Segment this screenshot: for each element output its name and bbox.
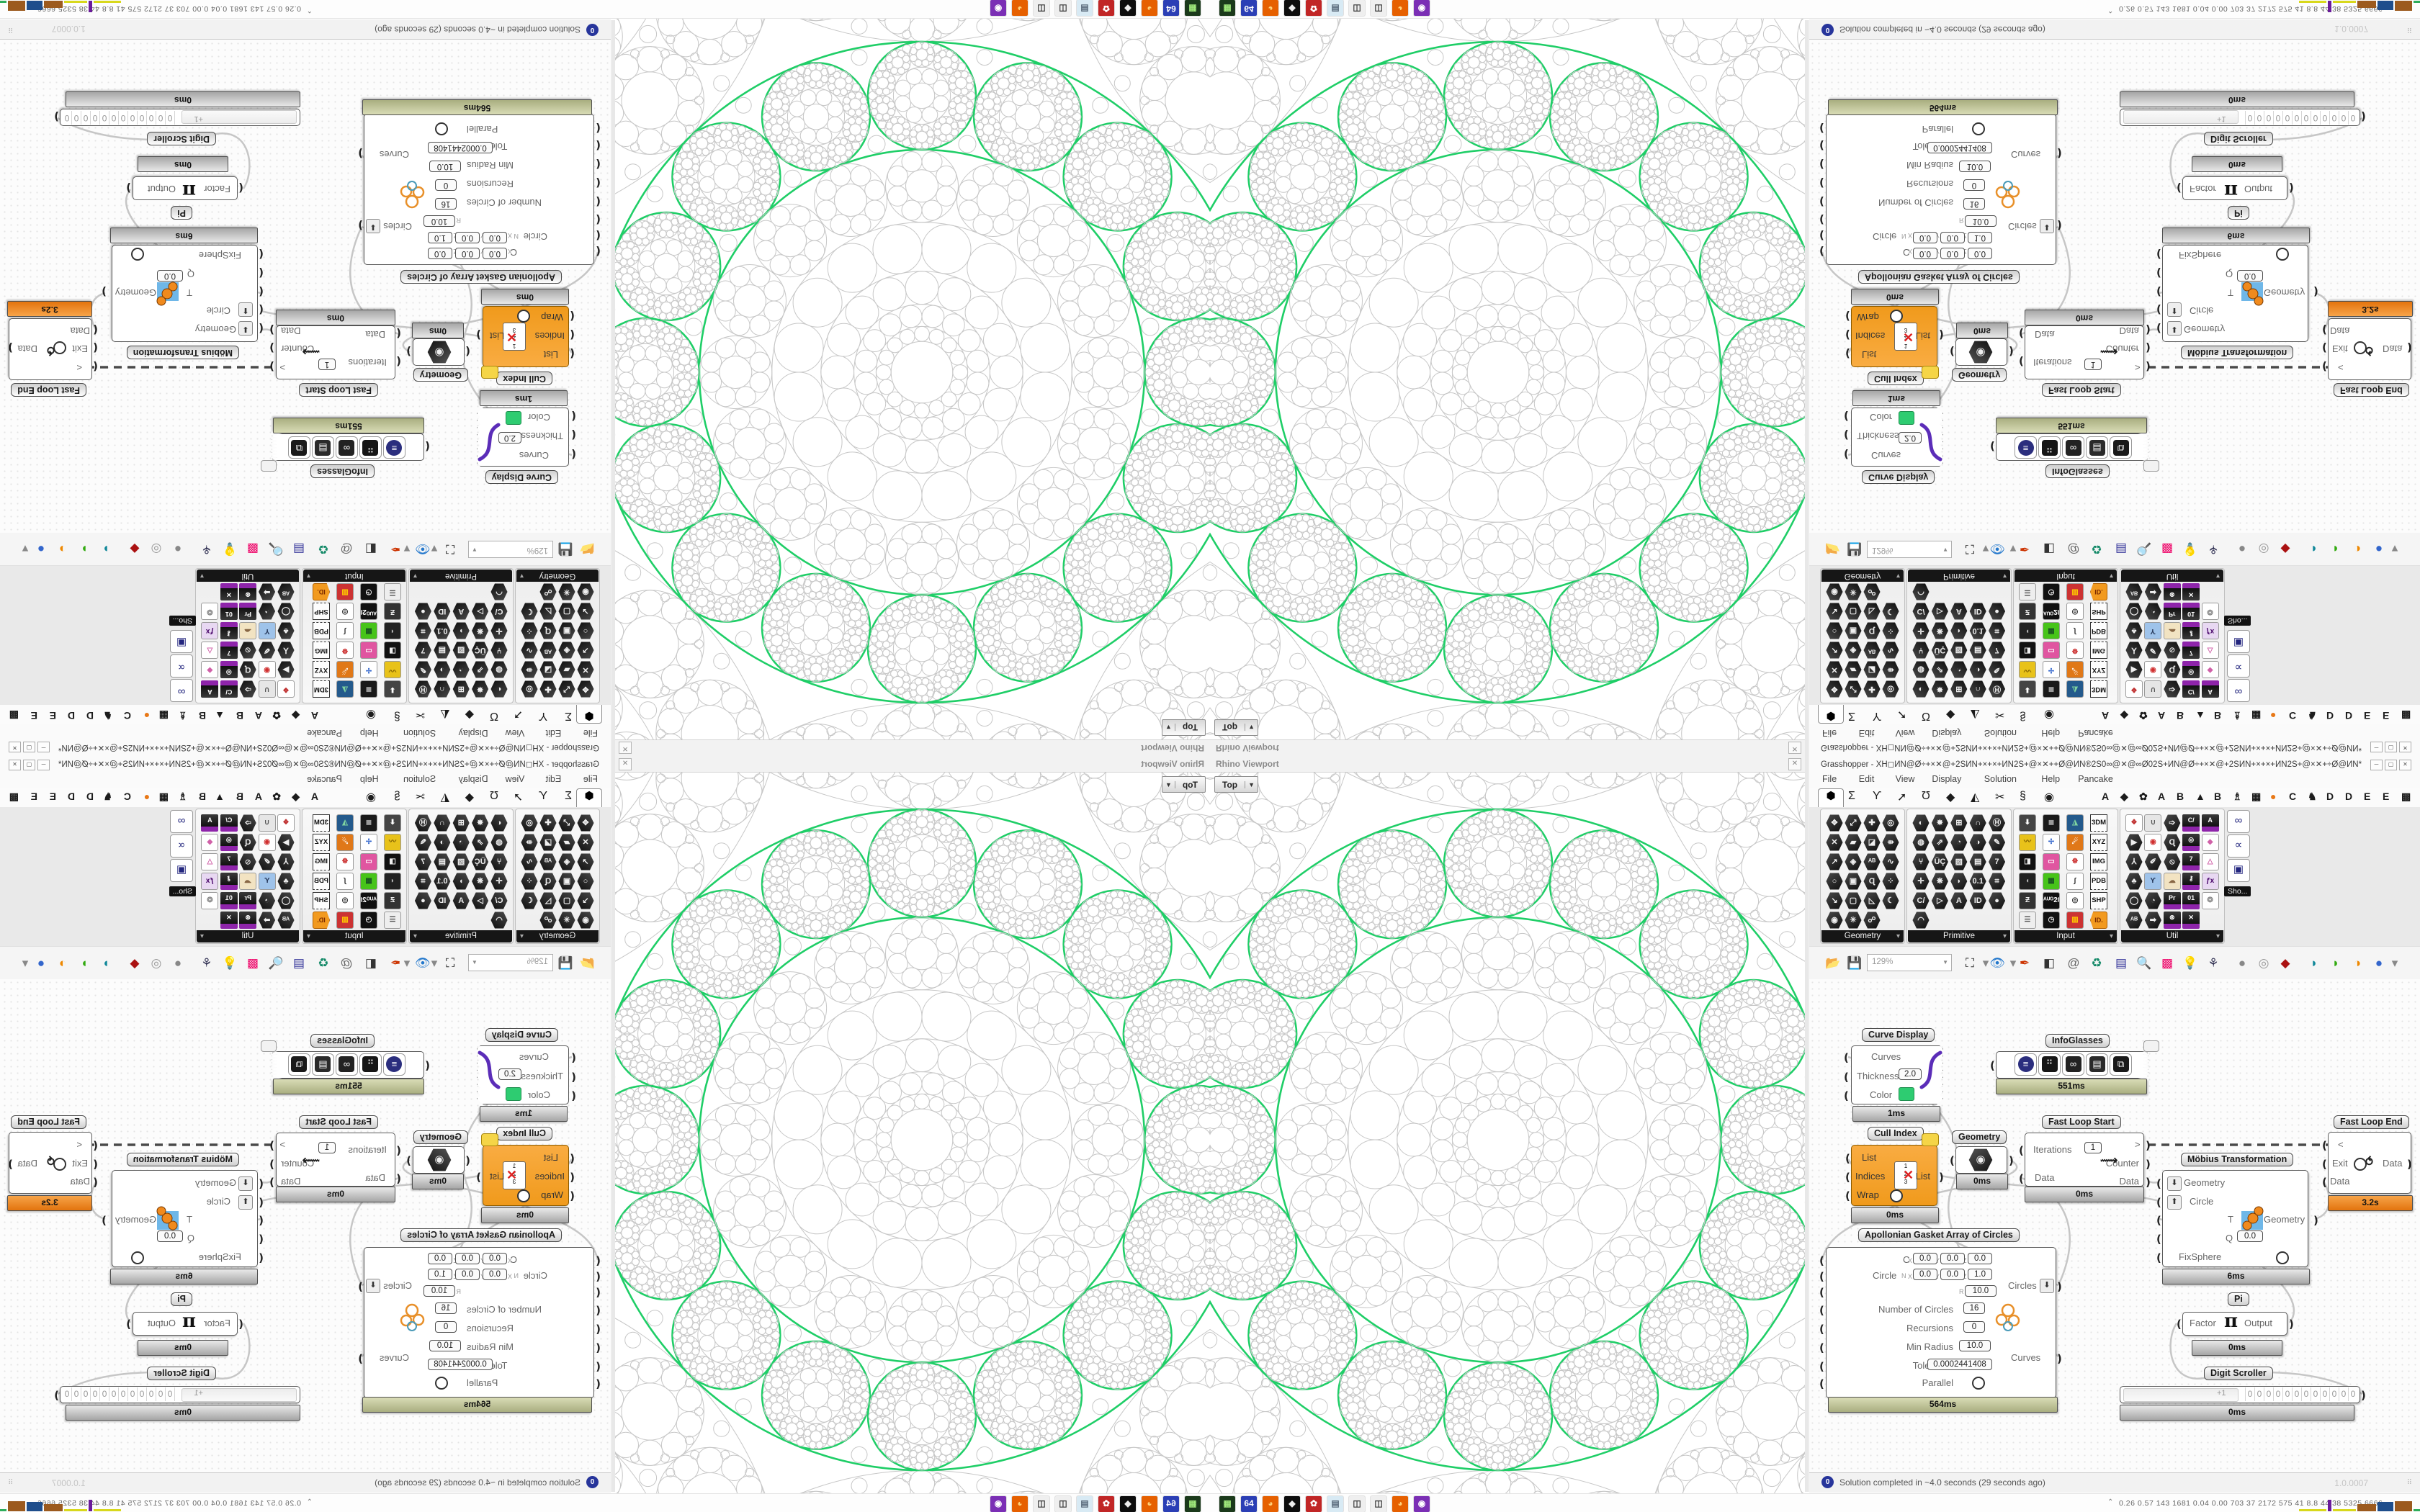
component-icon[interactable]: ◉ <box>259 661 276 678</box>
menu-view[interactable]: View <box>506 774 525 784</box>
tab-category-4[interactable]: ◆ <box>465 790 474 804</box>
digit-cell[interactable]: 0 <box>2273 111 2282 125</box>
tab-addon-2[interactable]: ✿ <box>2139 791 2148 803</box>
graft-icon[interactable]: ⬆ <box>238 302 253 317</box>
component-icon[interactable]: ✢ <box>360 834 377 851</box>
input-hook[interactable]: ( <box>570 1171 575 1184</box>
component-icon[interactable]: △ <box>201 642 218 659</box>
tab-params[interactable]: ⬢ <box>576 704 602 724</box>
component-icon[interactable]: ✕ <box>1826 661 1843 678</box>
component-icon[interactable]: Pr <box>239 603 256 620</box>
component-icon[interactable]: ▨ <box>452 642 470 659</box>
menu-file[interactable]: File <box>583 774 598 784</box>
digit-cell[interactable]: 0 <box>119 1387 128 1401</box>
input-hook[interactable]: ( <box>571 410 576 423</box>
component-icon[interactable]: 3DM <box>313 680 330 698</box>
component-icon[interactable]: ◐ <box>1912 814 1930 832</box>
min-radius-value[interactable]: 10.0 <box>429 1340 461 1351</box>
chevron-down-icon[interactable]: ▼ <box>1162 781 1175 788</box>
component-icon[interactable]: ▥ <box>2066 583 2084 600</box>
tab-category-4[interactable]: ◆ <box>1946 708 1955 722</box>
wrap-toggle[interactable] <box>1890 1189 1903 1202</box>
component-icon[interactable]: ⬇ <box>384 680 401 698</box>
component-icon[interactable]: ◎ <box>220 661 238 678</box>
normal-coord-value[interactable]: 1.0 <box>428 232 452 243</box>
menu-display[interactable]: Display <box>1932 774 1961 784</box>
menu-view[interactable]: View <box>1896 774 1915 784</box>
toolbar-button-sphere-blue[interactable]: ▾ <box>16 539 35 558</box>
input-hook[interactable]: ( <box>396 355 401 368</box>
panel-footer-util[interactable]: Util▾ <box>197 930 299 942</box>
component-icon[interactable]: 〰 <box>2019 661 2036 678</box>
close-icon[interactable]: ✕ <box>9 760 21 770</box>
menu-solution[interactable]: Solution <box>403 774 436 784</box>
tab-addon-15[interactable]: E <box>31 791 37 802</box>
component-icon[interactable]: 7 <box>220 642 238 659</box>
goggles-lock-icon[interactable]: ∞ <box>336 436 358 459</box>
component-icon[interactable]: XYZ <box>2090 661 2107 678</box>
output-hook[interactable]: ) <box>102 285 107 298</box>
c-coord-value[interactable]: 0.0 <box>1968 248 1992 259</box>
component-icon[interactable]: ▰ <box>558 661 575 678</box>
tab-category-0[interactable]: Σ <box>565 709 572 722</box>
input-hook[interactable]: ( <box>259 1214 264 1227</box>
component-icon[interactable]: ☸ <box>336 853 354 870</box>
component-icon[interactable]: ▢ <box>1845 603 1862 620</box>
input-hook[interactable]: ( <box>1819 213 1824 226</box>
toolbar-button-pin-teal[interactable]: ◎ <box>2254 539 2273 558</box>
tab-category-7[interactable]: § <box>394 709 400 722</box>
component-icon[interactable]: ✥ <box>1826 814 1843 832</box>
component-icon[interactable]: ✕ <box>2182 912 2200 929</box>
component-icon[interactable]: ✐ <box>2144 853 2161 870</box>
input-hook[interactable]: ( <box>1990 1059 1995 1072</box>
component-icon[interactable]: ᴬᵁᴳ20 <box>360 603 377 620</box>
chevron-down-icon[interactable]: ▼ <box>1245 781 1258 788</box>
tab-category-6[interactable]: ✂ <box>1995 790 2004 804</box>
menu-help[interactable]: Help <box>360 728 379 738</box>
archive-icon[interactable]: ▤ <box>312 436 334 459</box>
overflow-icon-1[interactable]: ∝ <box>170 654 193 678</box>
tab-addon-3[interactable]: A <box>255 791 262 802</box>
component-icon[interactable]: ⊞ <box>1950 814 1968 832</box>
component-icon[interactable]: ◗ <box>452 873 470 890</box>
component-icon[interactable]: ◷ <box>2043 912 2060 929</box>
infoglasses-balloon[interactable] <box>261 1040 277 1052</box>
toolbar-button-sphere-gray[interactable]: 💡 <box>2181 954 2200 973</box>
overflow-icon-2[interactable]: ▣ <box>2227 630 2250 653</box>
component-icon[interactable]: ✸ <box>472 814 489 832</box>
component-infoglasses-label[interactable]: InfoGlasses <box>310 464 375 478</box>
component-icon[interactable]: ID. <box>313 912 330 929</box>
component-icon[interactable]: 01 <box>220 603 238 620</box>
component-icon[interactable]: ☰ <box>2019 912 2036 929</box>
component-icon[interactable]: ◗ <box>1950 622 1968 639</box>
normal-coord-value[interactable]: 1.0 <box>1968 232 1992 243</box>
component-icon[interactable]: ⤢ <box>1845 680 1862 698</box>
input-hook[interactable]: ( <box>93 360 98 373</box>
component-icon[interactable]: ◔ <box>259 603 276 620</box>
output-hook[interactable]: ) <box>8 341 13 354</box>
component-icon[interactable]: ▥ <box>336 912 354 929</box>
component-icon[interactable]: 〰 <box>2019 834 2036 851</box>
count-value[interactable]: 16 <box>1963 198 1985 210</box>
goggles-lock-icon[interactable]: ∞ <box>2062 436 2084 459</box>
digit-cell[interactable]: 0 <box>2339 1387 2348 1401</box>
overflow-icon-2[interactable]: ▣ <box>2227 859 2250 882</box>
input-hook[interactable]: ( <box>596 1254 601 1267</box>
component-infoglasses-label[interactable]: InfoGlasses <box>310 1034 375 1048</box>
menu-pancake[interactable]: Pancake <box>307 728 342 738</box>
component-icon[interactable]: ᴬᴮ <box>277 583 295 600</box>
component-icon[interactable]: C/ <box>490 603 508 620</box>
component-icon[interactable]: ✕ <box>2182 583 2200 600</box>
toolbar-button-gift-question[interactable]: ▤ <box>2112 954 2130 973</box>
toolbar-button-save[interactable]: 💾 <box>556 954 575 973</box>
component-icon[interactable]: ⇗ <box>472 834 489 851</box>
component-icon[interactable]: ◎ <box>336 892 354 909</box>
component-icon[interactable]: ◪ <box>539 834 557 851</box>
component-icon[interactable]: ⚷ <box>2182 873 2200 890</box>
toolbar-button-search-s[interactable]: ♻ <box>2087 954 2106 973</box>
component-icon[interactable]: ✳ <box>1845 583 1862 600</box>
tab-category-1[interactable]: Ƴ <box>1873 790 1881 803</box>
component-icon[interactable]: ❂ <box>201 603 218 620</box>
component-icon[interactable]: ↘ <box>577 892 594 909</box>
component-icon[interactable]: ⬇ <box>2019 680 2036 698</box>
tab-category-8[interactable]: ◉ <box>366 790 376 804</box>
component-geometry-label[interactable]: Geometry <box>413 368 468 382</box>
component-icon[interactable]: ▤ <box>434 642 451 659</box>
toolbar-button-pin-teal[interactable]: ◎ <box>2254 954 2273 973</box>
component-icon[interactable]: ❋ <box>472 873 489 890</box>
component-icon[interactable]: ☾ <box>1882 892 1899 909</box>
puzzle-icon[interactable]: ⧉ <box>2110 436 2132 459</box>
component-icon[interactable]: ✚ <box>1863 680 1881 698</box>
overflow-icon-2[interactable]: ▣ <box>170 859 193 882</box>
parallel-toggle[interactable] <box>1972 122 1985 135</box>
component-icon[interactable]: ∩ <box>434 814 451 832</box>
input-hook[interactable]: ( <box>570 310 575 323</box>
component-icon[interactable]: A <box>201 680 218 698</box>
component-icon[interactable]: 0.1 <box>434 873 451 890</box>
grid-icon[interactable]: ⠛ <box>359 436 382 459</box>
component-icon[interactable]: ☍ <box>539 912 557 929</box>
panel-footer-util[interactable]: Util▾ <box>197 570 299 582</box>
input-hook[interactable]: ( <box>2322 1158 2327 1171</box>
grasshopper-titlebar[interactable]: Grasshopper - XH◻ИN@Ø÷+×✕@+2SИN+×+×+ИN2S… <box>0 739 611 756</box>
firefox-icon[interactable]: ◕ <box>1141 0 1158 17</box>
component-pi-label[interactable]: Pi <box>171 1292 192 1306</box>
tab-addon-7[interactable]: ♗ <box>178 709 187 721</box>
tab-addon-15[interactable]: E <box>2383 791 2389 802</box>
toolbar-button-sphere-orange[interactable]: ◗ <box>97 954 115 973</box>
minimize-icon[interactable]: ─ <box>37 742 50 752</box>
component-icon[interactable]: ⑂ <box>1912 853 1930 870</box>
output-hook[interactable]: ) <box>2361 1389 2366 1402</box>
component-icon[interactable]: ◈ <box>558 853 575 870</box>
normal-coord-value[interactable]: 1.0 <box>1968 1269 1992 1280</box>
output-hook[interactable]: ) <box>2361 110 2366 123</box>
component-icon[interactable]: ☍ <box>1863 912 1881 929</box>
tab-addon-10[interactable]: C <box>2289 791 2296 802</box>
digit-cell[interactable]: 0 <box>2282 111 2292 125</box>
component-icon[interactable]: Ƶ <box>384 603 401 620</box>
component-icon[interactable]: ◼ <box>360 814 377 832</box>
resize-grip-icon[interactable]: ⠿ <box>7 1479 13 1487</box>
component-icon[interactable]: ✕ <box>577 661 594 678</box>
component-icon[interactable]: ▶ <box>2125 834 2143 851</box>
tab-addon-5[interactable]: ▲ <box>2195 710 2205 721</box>
component-icon[interactable]: ◎ <box>521 814 538 832</box>
component-icon[interactable]: ☾ <box>521 892 538 909</box>
component-icon[interactable]: ⊗ <box>239 583 256 600</box>
minimize-icon[interactable]: ─ <box>2370 760 2383 770</box>
tab-category-7[interactable]: § <box>394 790 400 803</box>
component-icon[interactable]: ∿ <box>1882 642 1899 659</box>
tab-addon-1[interactable]: ◆ <box>2120 791 2128 803</box>
component-icon[interactable]: ☁ <box>239 622 256 639</box>
iterations-value[interactable]: 1 <box>318 1142 336 1153</box>
component-icon[interactable]: ◨ <box>384 642 401 659</box>
radius-value[interactable]: 10.0 <box>1965 1285 1996 1297</box>
toolbar-button-pin-green[interactable]: ◆ <box>2276 539 2295 558</box>
close-icon[interactable]: ✕ <box>2399 760 2411 770</box>
component-icon[interactable]: ◐ <box>490 814 508 832</box>
min-radius-value[interactable]: 10.0 <box>1959 161 1991 172</box>
component-infoglasses-label[interactable]: InfoGlasses <box>2045 464 2110 478</box>
viewport-view-dropdown[interactable]: Top ▼ <box>1162 776 1206 793</box>
toolbar-button-gha[interactable]: ◧ <box>362 539 380 558</box>
component-icon[interactable]: ✚ <box>539 814 557 832</box>
iterations-value[interactable]: 1 <box>2084 359 2102 370</box>
component-icon[interactable]: ◠ <box>490 583 508 600</box>
component-icon[interactable]: ☄ <box>2066 834 2084 851</box>
component-icon[interactable]: A <box>452 892 470 909</box>
input-hook[interactable]: ( <box>259 266 264 279</box>
input-hook[interactable]: ( <box>259 1177 264 1190</box>
component-icon[interactable]: ⌗ <box>414 622 431 639</box>
component-icon[interactable]: ▣ <box>1845 622 1862 639</box>
output-hook[interactable]: ) <box>2146 360 2151 373</box>
component-icon[interactable]: ❖ <box>277 814 295 832</box>
component-icon[interactable]: ▤ <box>1969 642 1986 659</box>
tab-addon-2[interactable]: ✿ <box>2139 709 2148 721</box>
component-geometry-label[interactable]: Geometry <box>1952 368 2007 382</box>
chevron-down-icon[interactable]: ▼ <box>1245 724 1258 732</box>
tab-addon-12[interactable]: D <box>2326 710 2334 721</box>
color-swatch[interactable] <box>506 411 521 425</box>
component-icon[interactable]: ☸ <box>2066 642 2084 659</box>
component-icon[interactable]: ✚ <box>1863 814 1881 832</box>
tab-category-4[interactable]: ◆ <box>1946 790 1955 804</box>
tab-addon-13[interactable]: D <box>2345 791 2352 802</box>
digit-cell[interactable]: 0 <box>156 1387 166 1401</box>
component-fast-loop-end-label[interactable]: Fast Loop End <box>11 1115 86 1129</box>
component-icon[interactable]: ∫ <box>336 622 354 639</box>
tab-addon-8[interactable]: ▦ <box>159 709 169 721</box>
thickness-value[interactable]: 2.0 <box>498 432 521 444</box>
component-icon[interactable]: 7 <box>220 853 238 870</box>
tab-addon-6[interactable]: B <box>2214 791 2221 802</box>
floppy-64-icon[interactable]: 64 <box>1162 1495 1180 1512</box>
toolbar-button-rings[interactable]: ⚘ <box>197 954 216 973</box>
normal-coord-value[interactable]: 0.0 <box>455 232 480 243</box>
menu-pancake[interactable]: Pancake <box>307 774 342 784</box>
tab-category-1[interactable]: Ƴ <box>539 790 547 803</box>
component-icon[interactable]: ☁ <box>239 873 256 890</box>
maximize-icon[interactable]: ▢ <box>2385 760 2397 770</box>
component-icon[interactable]: ◔ <box>2144 603 2161 620</box>
toolbar-button-sphere-blue[interactable]: ▾ <box>16 954 35 973</box>
chevron-down-icon[interactable]: ▼ <box>472 959 478 966</box>
component-icon[interactable]: ✐ <box>259 642 276 659</box>
firefox-icon[interactable]: ◕ <box>1262 0 1279 17</box>
recursions-value[interactable]: 0 <box>435 1321 457 1333</box>
component-icon[interactable]: ▣ <box>558 622 575 639</box>
digit-cell[interactable]: 0 <box>147 1387 156 1401</box>
component-icon[interactable]: ○ <box>577 622 594 639</box>
component-digit-scroller-label[interactable]: Digit Scroller <box>147 132 216 145</box>
output-hook[interactable]: ) <box>2146 341 2151 354</box>
component-icon[interactable]: ✛ <box>490 873 508 890</box>
component-icon[interactable]: ➡ <box>259 912 276 929</box>
output-hook[interactable]: ) <box>2057 219 2062 232</box>
component-pi-label[interactable]: Pi <box>171 206 192 220</box>
component-icon[interactable]: ✐ <box>2144 642 2161 659</box>
component-icon[interactable]: 7 <box>414 642 431 659</box>
input-hook[interactable]: ( <box>1950 345 1955 358</box>
component-icon[interactable]: ⌗ <box>414 873 431 890</box>
component-icon[interactable]: ◯ <box>2125 892 2143 909</box>
component-curve-display-label[interactable]: Curve Display <box>485 1028 558 1042</box>
tab-addon-7[interactable]: ♗ <box>2233 709 2242 721</box>
component-icon[interactable]: Ƶ <box>2019 892 2036 909</box>
component-icon[interactable]: ▷ <box>1931 892 1948 909</box>
component-icon[interactable]: ● <box>414 603 431 620</box>
flatten-icon[interactable]: ⬇ <box>238 1176 253 1191</box>
maze-app-icon[interactable]: ◫ <box>1054 0 1072 17</box>
digit-cell[interactable]: 0 <box>2348 1387 2357 1401</box>
component-icon[interactable]: ∿ <box>521 853 538 870</box>
component-icon[interactable]: △ <box>2202 853 2219 870</box>
component-icon[interactable]: ☄ <box>2066 661 2084 678</box>
component-icon[interactable]: ▰ <box>1845 834 1862 851</box>
component-infoglasses-label[interactable]: InfoGlasses <box>2045 1034 2110 1048</box>
input-hook[interactable]: ( <box>93 1176 98 1189</box>
component-icon[interactable]: ◪ <box>539 661 557 678</box>
digit-cell[interactable]: 0 <box>2264 111 2273 125</box>
component-icon[interactable]: ID <box>1969 892 1986 909</box>
digit-cell[interactable]: 0 <box>63 111 72 125</box>
component-icon[interactable]: ◆ <box>201 834 218 851</box>
tab-addon-10[interactable]: C <box>124 791 131 802</box>
tab-addon-14[interactable]: E <box>50 710 56 721</box>
component-icon[interactable]: ✳ <box>558 912 575 929</box>
dark-app-icon[interactable]: ◆ <box>1119 0 1137 17</box>
component-curve-display-label[interactable]: Curve Display <box>1862 470 1935 484</box>
component-fast-loop-start-label[interactable]: Fast Loop Start <box>2042 383 2121 397</box>
component-icon[interactable]: 7 <box>414 853 431 870</box>
toolbar-button-at-widget[interactable]: ✒ <box>386 539 405 558</box>
input-hook[interactable]: ( <box>596 1304 601 1317</box>
component-icon[interactable]: ♣ <box>2125 622 2143 639</box>
digit-cell[interactable]: 0 <box>2292 111 2301 125</box>
component-icon[interactable]: ID. <box>2090 583 2107 600</box>
component-icon[interactable]: ✛ <box>490 622 508 639</box>
component-icon[interactable]: ◪ <box>1863 834 1881 851</box>
component-icon[interactable]: A <box>2202 680 2219 698</box>
chevron-up-icon[interactable]: ⌃ <box>2107 1498 2113 1506</box>
tab-addon-12[interactable]: D <box>86 791 94 802</box>
component-icon[interactable]: ▢ <box>558 892 575 909</box>
input-hook[interactable]: ( <box>2156 322 2161 335</box>
toolbar-button-sphere-blue[interactable]: ◑ <box>2348 539 2367 558</box>
input-hook[interactable]: ( <box>259 322 264 335</box>
component-icon[interactable]: IMG <box>313 853 330 870</box>
component-icon[interactable]: ▶ <box>2125 661 2143 678</box>
menu-view[interactable]: View <box>1896 728 1915 738</box>
component-icon[interactable]: ↗ <box>1826 642 1843 659</box>
input-hook[interactable]: ( <box>1845 1189 1850 1202</box>
toolbar-button-lightbulb[interactable]: 🔍 <box>2135 539 2154 558</box>
component-icon[interactable]: ▦ <box>2043 873 2060 890</box>
fixsphere-toggle[interactable] <box>131 1251 144 1264</box>
output-hook[interactable]: ) <box>102 1214 107 1227</box>
component-icon[interactable]: ⦸ <box>239 642 256 659</box>
output-hook[interactable]: ) <box>476 328 481 341</box>
input-hook[interactable]: ( <box>1845 1171 1850 1184</box>
chevron-up-icon[interactable]: ⌃ <box>307 6 313 14</box>
firefox-icon-2[interactable]: ◕ <box>1391 1495 1409 1512</box>
input-hook[interactable]: ( <box>1844 448 1849 461</box>
component-icon[interactable]: ✕ <box>220 583 238 600</box>
digit-cell[interactable]: 0 <box>109 111 119 125</box>
toolbar-button-sphere-blue[interactable]: ◗ <box>2326 954 2345 973</box>
toolbar-button-ribbons[interactable]: ▩ <box>243 539 262 558</box>
menu-edit[interactable]: Edit <box>546 728 562 738</box>
component-icon[interactable]: ◆ <box>2202 834 2219 851</box>
component-icon[interactable]: ➡ <box>259 583 276 600</box>
digit-cell[interactable]: 0 <box>128 111 138 125</box>
component-icon[interactable]: ✕ <box>220 912 238 929</box>
component-icon[interactable]: ◨ <box>384 853 401 870</box>
owl-app-icon[interactable]: ◉ <box>990 0 1007 17</box>
output-hook[interactable]: ) <box>2146 323 2151 336</box>
input-hook[interactable]: ( <box>1819 122 1824 135</box>
component-icon[interactable]: ✢ <box>2043 661 2060 678</box>
toolbar-button-lightbulb[interactable]: 🔍 <box>266 539 285 558</box>
component-icon[interactable]: ⚷ <box>220 622 238 639</box>
viewport-view-dropdown[interactable]: Top ▼ <box>1162 719 1206 736</box>
input-hook[interactable]: ( <box>465 1154 470 1167</box>
chevron-down-icon[interactable]: ▼ <box>1162 724 1175 732</box>
menu-view[interactable]: View <box>506 728 525 738</box>
archive-icon[interactable]: ▤ <box>312 1053 334 1076</box>
toolbar-button-at-widget[interactable]: ✒ <box>386 954 405 973</box>
component-icon[interactable]: ◔ <box>452 834 470 851</box>
digit-cell[interactable]: 0 <box>63 1387 72 1401</box>
viewport-view-dropdown[interactable]: Top ▼ <box>1214 776 1258 793</box>
tab-category-6[interactable]: ✂ <box>1995 708 2004 722</box>
toolbar-button-sphere-orange[interactable]: ◗ <box>97 539 115 558</box>
tab-category-4[interactable]: ◆ <box>465 708 474 722</box>
component-icon[interactable]: SHP <box>2090 603 2107 620</box>
digit-cell[interactable]: 0 <box>2320 111 2329 125</box>
recursions-value[interactable]: 0 <box>435 179 457 191</box>
input-hook[interactable]: ( <box>2156 303 2161 316</box>
component-icon[interactable]: ⦸ <box>239 853 256 870</box>
